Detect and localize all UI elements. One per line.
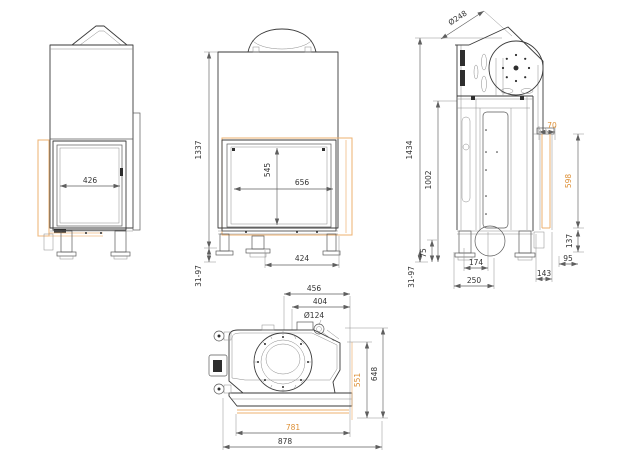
dim-424: 424 — [265, 236, 339, 268]
dim-95: 95 — [559, 254, 578, 267]
dim-137-label: 137 — [565, 234, 574, 249]
dim-781-label: 781 — [286, 423, 301, 432]
dim-31-97-front-label: 31-97 — [194, 265, 203, 287]
dim-75-label: 75 — [419, 248, 428, 258]
flue-collar — [254, 331, 312, 393]
dim-551: 551 — [347, 342, 372, 418]
door-latch — [209, 355, 227, 376]
dim-248: Ø248 — [441, 8, 512, 39]
dim-656: 656 — [234, 178, 333, 189]
dim-545-label: 545 — [263, 163, 272, 178]
dim-1337-label: 1337 — [194, 140, 203, 159]
dim-781: 781 — [236, 414, 350, 436]
dim-598: 598 — [564, 134, 584, 228]
dim-75: 75 — [419, 240, 437, 262]
side-view-right: Ø248 1434 1002 31-97 75 — [405, 8, 584, 289]
dim-174-label: 174 — [469, 258, 484, 267]
fan-assembly — [474, 41, 543, 95]
dim-137: 137 — [565, 230, 584, 252]
dim-424-label: 424 — [295, 254, 310, 263]
dim-250-label: 250 — [467, 276, 482, 285]
accent-frame-side-right — [540, 134, 552, 230]
dim-456-label: 456 — [307, 284, 322, 293]
dim-648: 648 — [345, 328, 388, 418]
dim-598-label: 598 — [564, 174, 573, 189]
dim-878-label: 878 — [278, 437, 293, 446]
front-view: 1337 31-97 545 656 — [194, 29, 352, 287]
dim-404-label: 404 — [313, 297, 328, 306]
dim-31-97-front: 31-97 — [194, 248, 216, 287]
dim-124-label: Ø124 — [304, 311, 324, 320]
technical-drawing-canvas: 426 1337 31-97 — [0, 0, 624, 460]
dim-70-label: 70 — [547, 121, 557, 130]
dim-656-label: 656 — [295, 178, 310, 187]
dim-648-label: 648 — [370, 367, 379, 382]
dim-426-label: 426 — [83, 176, 98, 185]
hinge-bottom — [214, 384, 231, 394]
accent-frame-front — [222, 138, 352, 235]
dim-95-label: 95 — [563, 254, 573, 263]
dim-1434: 1434 — [405, 38, 502, 262]
dim-1002-label: 1002 — [424, 170, 433, 189]
dim-248-label: Ø248 — [447, 8, 469, 27]
dim-174: 174 — [464, 232, 488, 271]
top-view: 456 404 Ø124 — [209, 284, 388, 450]
dim-545: 545 — [263, 148, 277, 225]
dim-31-97-side-label: 31-97 — [407, 266, 416, 288]
drawing-svg: 426 1337 31-97 — [0, 0, 624, 460]
dim-1434-label: 1434 — [405, 140, 414, 159]
dim-426: 426 — [60, 176, 120, 186]
dim-551-label: 551 — [353, 373, 362, 388]
side-view-left: 426 — [38, 26, 140, 259]
dim-1002: 1002 — [424, 101, 457, 262]
accent-frame-side-left — [38, 140, 103, 236]
dim-143-label: 143 — [537, 269, 552, 278]
hinge-top — [214, 331, 231, 341]
